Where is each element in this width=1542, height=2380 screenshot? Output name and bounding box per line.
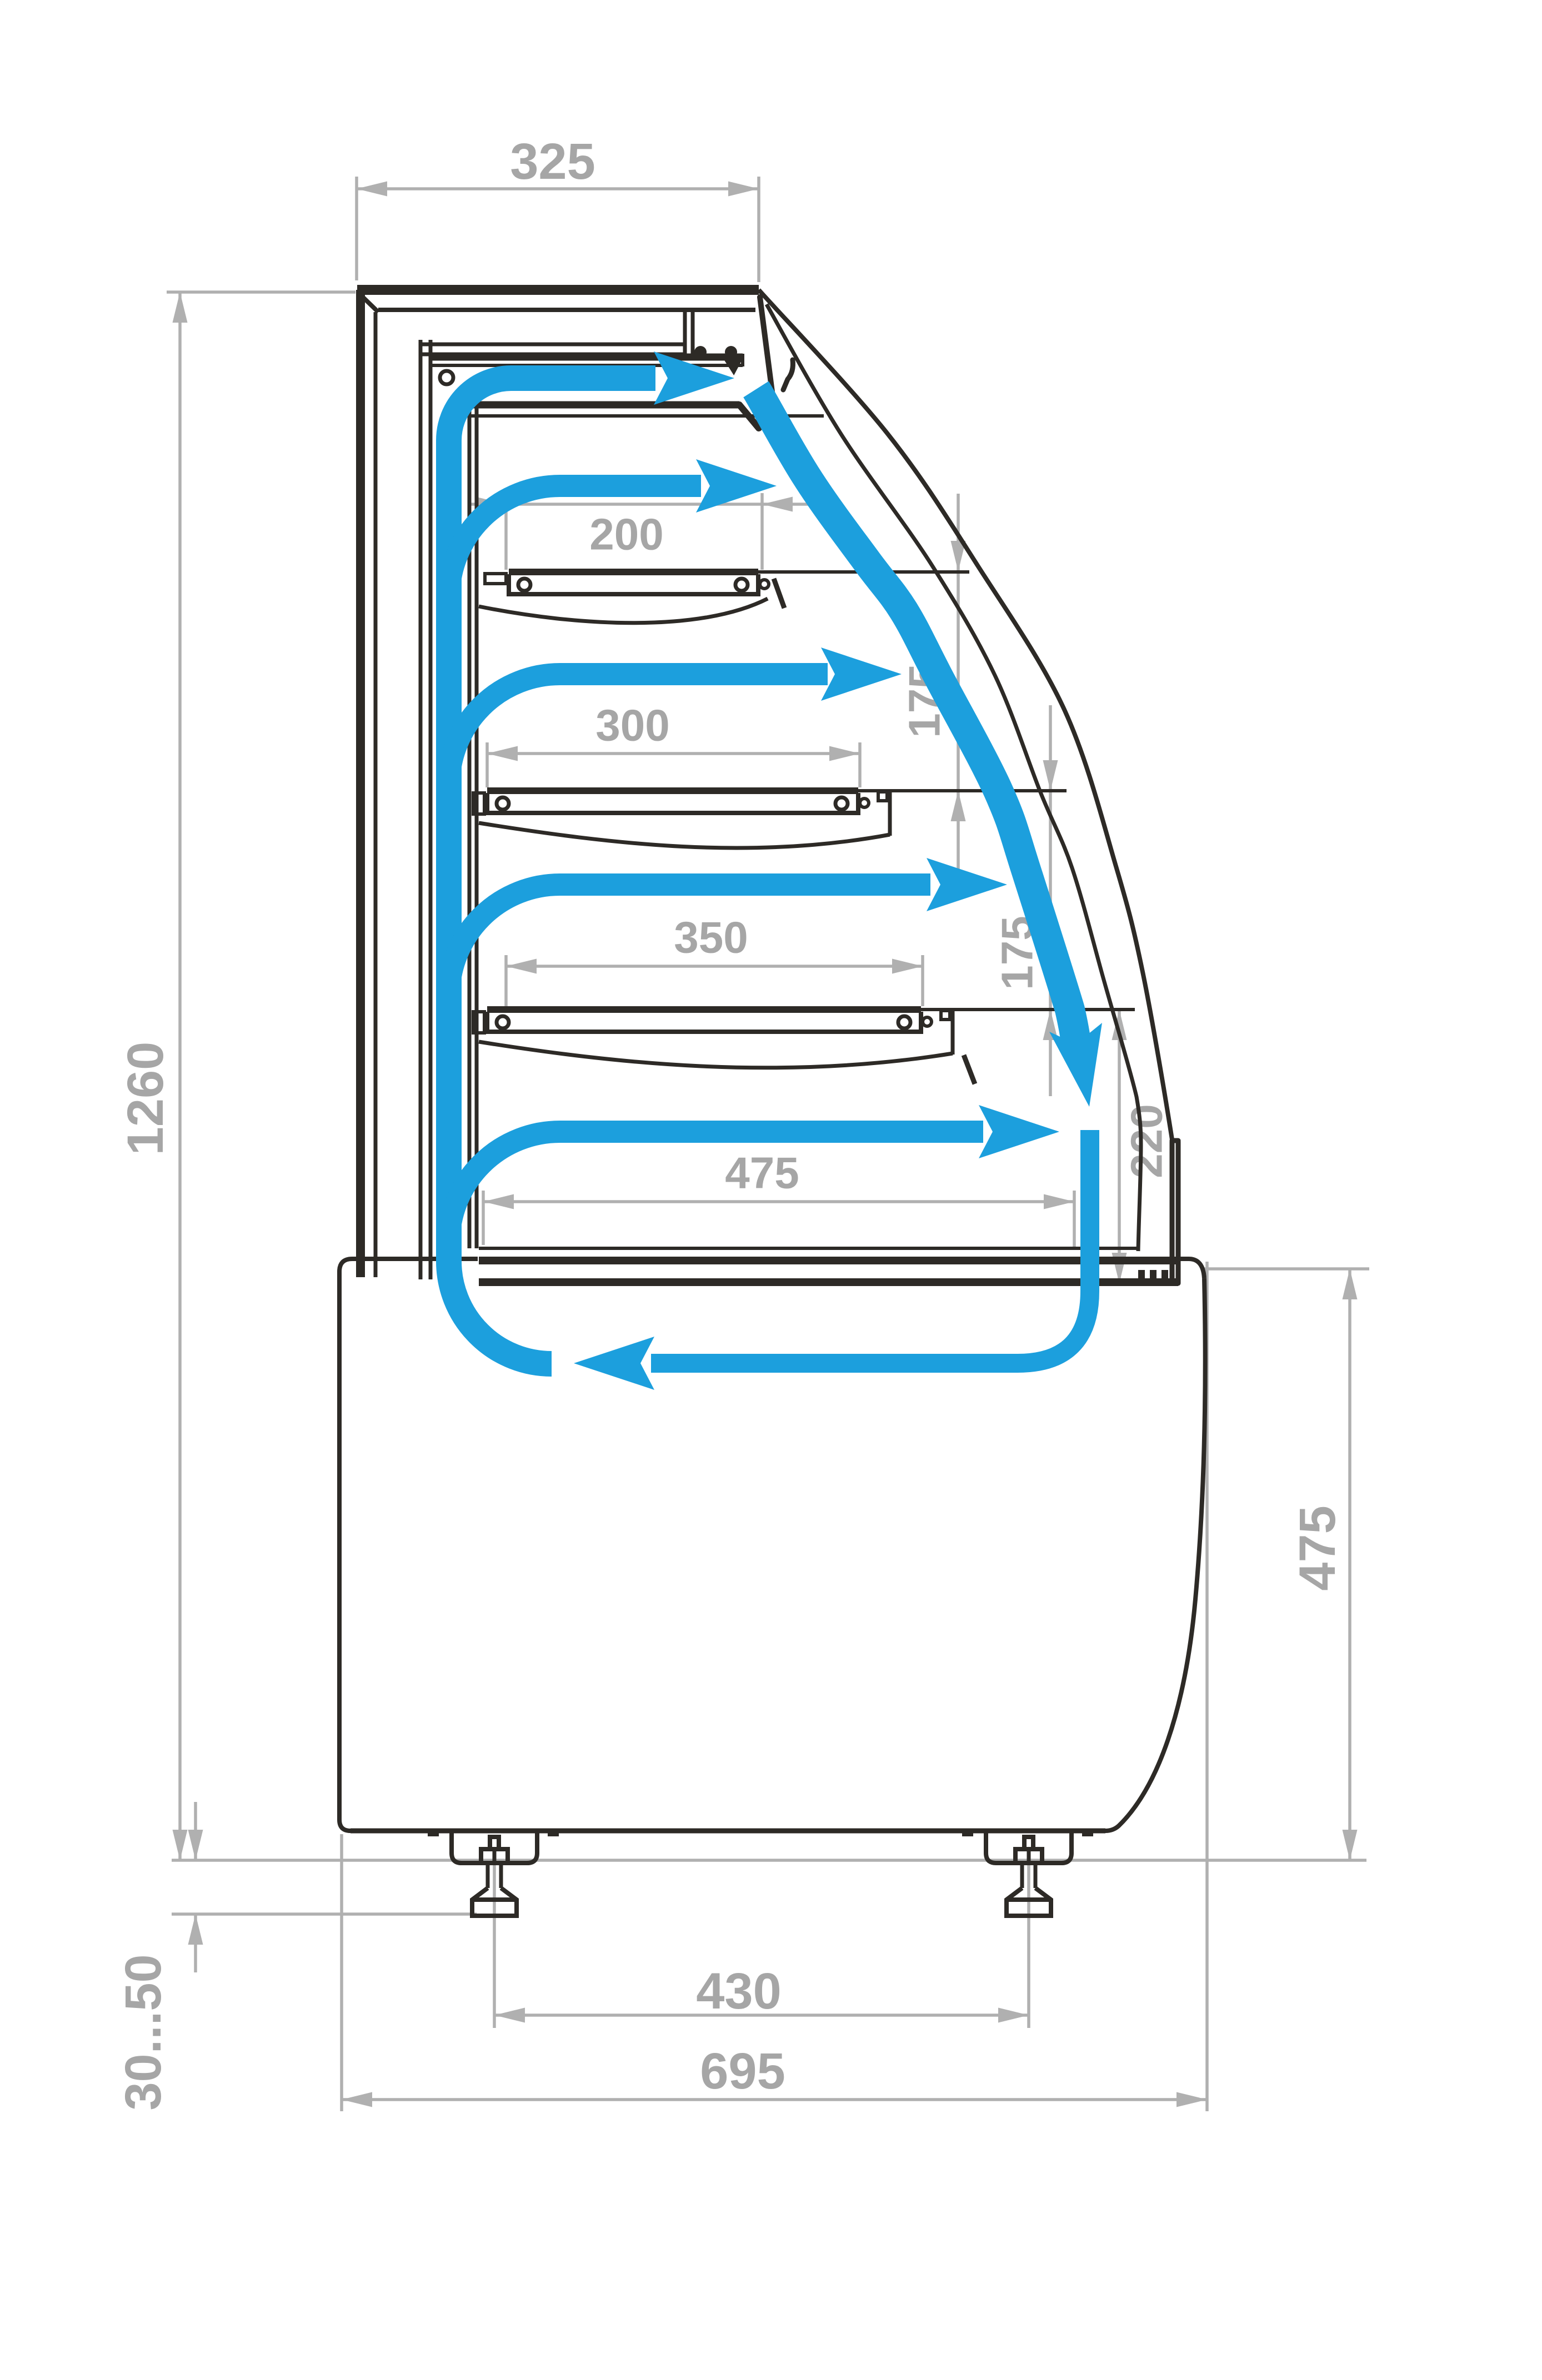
svg-text:300: 300 [595,701,669,750]
svg-text:1260: 1260 [117,1042,174,1156]
svg-text:430: 430 [696,1963,782,2020]
svg-text:200: 200 [589,510,663,559]
svg-text:220: 220 [1122,1104,1171,1178]
svg-text:30...50: 30...50 [115,1954,172,2110]
svg-text:350: 350 [674,913,748,962]
svg-text:695: 695 [700,2043,785,2100]
svg-text:325: 325 [510,133,595,190]
svg-text:475: 475 [1289,1505,1346,1591]
svg-text:475: 475 [725,1148,799,1198]
